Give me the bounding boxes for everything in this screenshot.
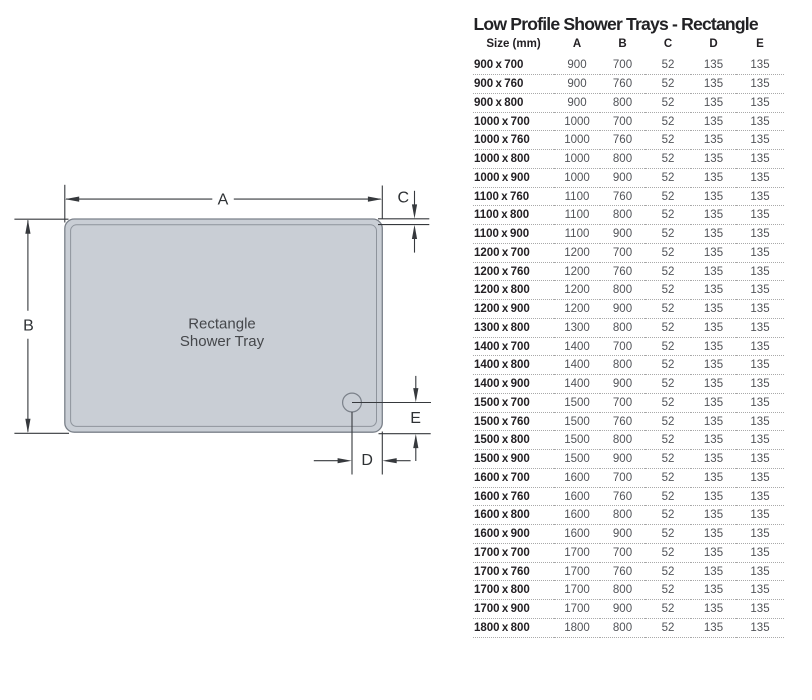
svg-text:D: D (361, 452, 373, 469)
svg-text:Rectangle: Rectangle (188, 316, 256, 333)
svg-text:Shower Tray: Shower Tray (180, 333, 265, 350)
svg-text:E: E (410, 410, 421, 427)
svg-text:C: C (398, 189, 410, 206)
svg-text:B: B (23, 317, 34, 334)
svg-text:A: A (218, 192, 229, 209)
